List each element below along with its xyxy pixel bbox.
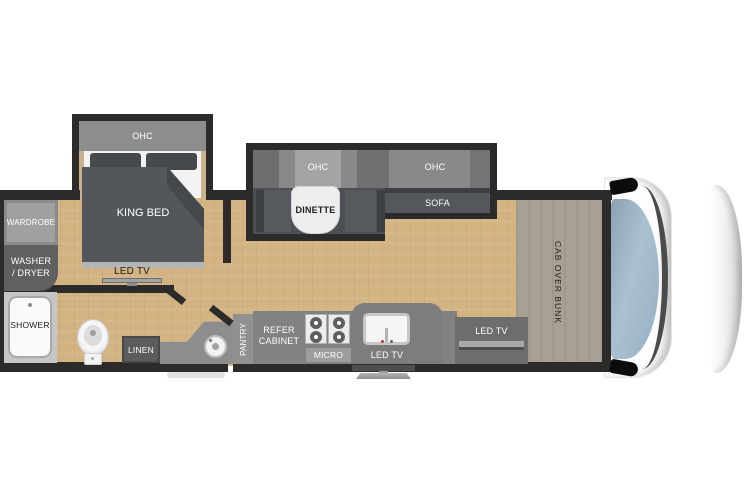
wardrobe: WARDROBE: [4, 200, 58, 245]
washer-dryer: WASHER / DRYER: [4, 245, 58, 291]
shower-drain: [28, 303, 32, 307]
ohc-segment: [357, 150, 389, 188]
dinette-cushion-left: [264, 190, 291, 232]
rv-floorplan: CAB OVER BUNK OHC KING BED OHC OHC DINET…: [0, 0, 750, 500]
dinette-cushion-right: [345, 190, 376, 232]
bedroom-tv-stand: [127, 283, 137, 286]
refer-cabinet-label: REFER CABINET: [251, 325, 307, 348]
hood: [702, 185, 742, 373]
dinette-ohc-label: OHC: [288, 162, 348, 172]
ohc-segment: [253, 150, 279, 188]
burner: [310, 317, 322, 329]
sofa: SOFA: [385, 188, 490, 213]
wall-bedroom-divider: [223, 193, 231, 263]
burner: [310, 331, 322, 343]
wall-top-right: [490, 190, 612, 200]
burner: [333, 331, 345, 343]
pantry: PANTRY: [233, 314, 253, 364]
dinette-seat-back-left: [256, 190, 264, 232]
king-bed-label: KING BED: [113, 207, 173, 220]
exterior-tv-label: LED TV: [358, 350, 416, 360]
toilet-base-bolt: [91, 357, 94, 360]
front-tv: [459, 341, 524, 350]
microwave: MICRO: [305, 347, 352, 363]
bathroom-faucet: [209, 339, 212, 342]
sofa-ohc-label: OHC: [405, 162, 465, 172]
kitchen-faucet: [385, 328, 388, 342]
wall-top-left: [0, 190, 80, 200]
exterior-tv-stand: [356, 373, 411, 379]
front-tv-label: LED TV: [455, 326, 528, 336]
bedroom-tv-label: LED TV: [100, 266, 164, 277]
wall-right: [602, 190, 611, 372]
cab-over-bunk-label: CAB OVER BUNK: [548, 228, 568, 336]
faucet-handle-hot: [381, 340, 384, 343]
entry-step: [167, 372, 225, 378]
toilet-drain: [90, 330, 96, 336]
faucet-handle-cold: [390, 340, 393, 343]
bathroom-sink-drain: [212, 343, 219, 350]
dinette-seat-back-right: [377, 190, 385, 232]
burner: [333, 317, 345, 329]
ohc-segment: [470, 150, 490, 188]
shower-label: SHOWER: [6, 320, 54, 330]
linen-cabinet: LINEN: [122, 336, 160, 363]
dinette-table: DINETTE: [291, 186, 340, 234]
bedroom-ohc-cabinet: OHC: [79, 121, 206, 151]
